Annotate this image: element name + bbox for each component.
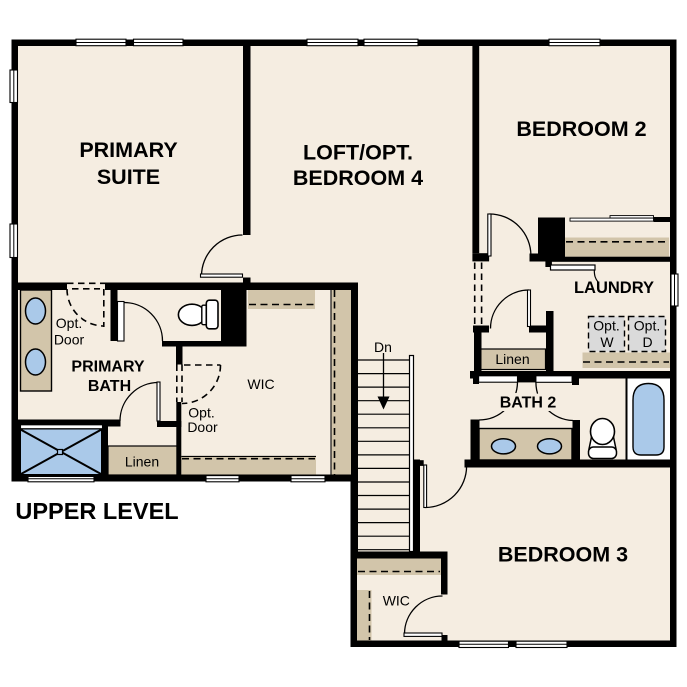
svg-text:BEDROOM 3: BEDROOM 3 xyxy=(498,543,628,567)
svg-text:LAUNDRY: LAUNDRY xyxy=(574,279,654,297)
svg-text:Linen: Linen xyxy=(125,454,159,470)
svg-text:BATH 2: BATH 2 xyxy=(500,395,557,412)
svg-text:Door: Door xyxy=(54,332,85,348)
svg-text:BEDROOM 4: BEDROOM 4 xyxy=(293,166,423,190)
svg-text:W: W xyxy=(600,334,614,350)
svg-text:PRIMARY: PRIMARY xyxy=(79,138,177,162)
svg-text:SUITE: SUITE xyxy=(97,165,160,189)
svg-text:LOFT/OPT.: LOFT/OPT. xyxy=(303,141,413,165)
svg-text:BEDROOM 2: BEDROOM 2 xyxy=(516,117,646,141)
svg-text:D: D xyxy=(642,334,652,350)
svg-text:Dn: Dn xyxy=(374,339,392,355)
svg-text:Door: Door xyxy=(187,419,218,435)
svg-text:WIC: WIC xyxy=(383,593,410,609)
svg-text:BATH: BATH xyxy=(88,378,131,395)
svg-text:UPPER LEVEL: UPPER LEVEL xyxy=(15,498,178,524)
svg-text:Opt.: Opt. xyxy=(593,318,619,334)
svg-text:PRIMARY: PRIMARY xyxy=(71,359,145,376)
svg-text:Opt.: Opt. xyxy=(56,315,82,331)
svg-text:Opt.: Opt. xyxy=(634,318,660,334)
svg-text:WIC: WIC xyxy=(247,376,274,392)
svg-text:Linen: Linen xyxy=(495,351,529,367)
